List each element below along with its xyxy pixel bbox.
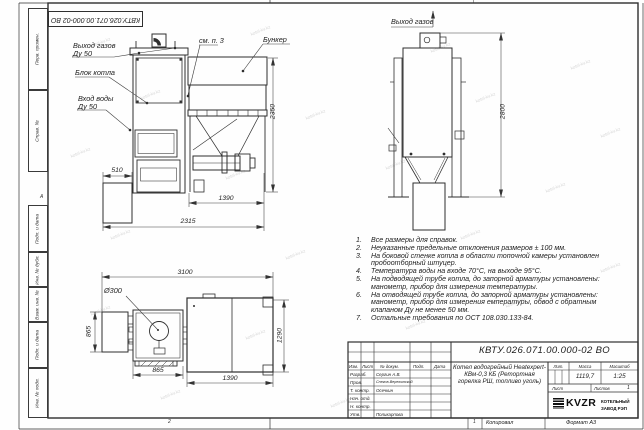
dim-1390-front: 1390 xyxy=(206,195,246,202)
dim-1290: 1290 xyxy=(277,321,284,351)
dim-2800: 2800 xyxy=(500,97,507,127)
tb-mass-value: 1119,7 xyxy=(569,373,601,380)
side-view xyxy=(388,11,505,230)
tb-header-doc: № докум. xyxy=(380,364,399,369)
tb-role-prov: Пров. xyxy=(350,380,362,385)
label-boiler-block: Блок котла xyxy=(75,69,115,77)
title-block-doc-number: КВТУ.026.071.00.000-02 ВО xyxy=(451,345,638,356)
dim-1390-plan: 1390 xyxy=(210,375,250,382)
tb-name-razrab: Сергин А.В. xyxy=(376,372,401,377)
dim-3100: 3100 xyxy=(165,269,205,276)
label-water-inlet-dn: Ду 50 xyxy=(78,103,97,111)
dim-865-left: 865 xyxy=(86,317,93,347)
note-number: 6. xyxy=(356,292,371,315)
top-doc-number: КВТУ.026.071.00.000-02 ВО xyxy=(51,16,140,23)
stamp-podp-data-2: Подп. и дата xyxy=(28,322,48,368)
tb-name-prov: Снегов-Вережинский xyxy=(376,380,413,384)
label-see-note-3: см. п. 3 xyxy=(199,37,224,45)
label-gas-outlet-dn: Ду 50 xyxy=(73,50,92,58)
note-text: Остальные требования по ОСТ 108.030.133-… xyxy=(371,315,608,323)
label-hopper: Бункер xyxy=(263,36,287,44)
tb-role-nkontr: Н. контр. xyxy=(350,404,371,409)
footer-kopiroval: Копировал xyxy=(486,420,513,426)
tb-sheet-label: Лист xyxy=(552,386,563,391)
tb-lit-label: Лит. xyxy=(548,364,569,369)
footer-format: Формат А3 xyxy=(566,420,596,426)
stamp-podp-data-1: Подп. и дата xyxy=(28,205,48,252)
tb-role-utv: Утв. xyxy=(350,412,360,417)
stamp-label: Взам. инв. № xyxy=(36,290,41,320)
zone-mark-bottom-2: 2 xyxy=(168,419,171,425)
label-gas-outlet-side: Выход газов xyxy=(391,18,434,26)
stamp-sprav-no: Справ. № xyxy=(28,90,48,172)
note-text: На отводящей трубе котла, до запорной ар… xyxy=(371,292,608,315)
tb-sheets-label: Листов xyxy=(594,386,610,391)
tb-name-tkontr: Осечкин xyxy=(376,388,393,393)
stamp-label: Инв. № подл. xyxy=(36,378,41,408)
stamp-inv-dubl: Инв. № дубл. xyxy=(28,252,48,287)
kvzr-logo-line2: ЗАВОД РЭП xyxy=(601,406,627,411)
kvzr-logo-mark xyxy=(553,398,564,409)
title-block-product-name: Котел водогрейный Heatexpert-КВм-0,3 КБ … xyxy=(453,364,546,386)
tb-header-podp: Подп. xyxy=(413,364,424,369)
stamp-label: Подп. и дата xyxy=(36,213,41,243)
note-item: 3.На боковой стенке котла в области топо… xyxy=(356,253,608,269)
kvzr-logo-line1: КОТЕЛЬНЫЙ xyxy=(601,399,630,404)
zone-mark-bottom-1: 1 xyxy=(473,419,476,425)
stamp-label: Справ. № xyxy=(36,120,41,142)
tb-mass-label: Масса xyxy=(569,364,601,369)
tb-header-izm: Изм. xyxy=(349,364,358,369)
top-doc-number-stamp: КВТУ.026.071.00.000-02 ВО xyxy=(48,11,143,27)
drawing-sheet: kotel-kv.kz kotel-kv.kz kotel-kv.kz kote… xyxy=(0,0,644,430)
note-number: 7. xyxy=(356,315,371,323)
tb-header-list: Лист xyxy=(362,364,373,369)
tb-sheets-value: 1 xyxy=(627,385,630,391)
zone-mark-left-a: А xyxy=(40,194,43,200)
stamp-label: Подп. и дата xyxy=(36,330,41,360)
stamp-inv-podl: Инв. № подл. xyxy=(28,368,48,418)
note-text: На подводящей трубе котла, до запорной а… xyxy=(371,276,608,292)
note-item: 6.На отводящей трубе котла, до запорной … xyxy=(356,292,608,315)
tb-role-tkontr: Т. контр. xyxy=(350,388,370,393)
note-item: 5.На подводящей трубе котла, до запорной… xyxy=(356,276,608,292)
dim-2315: 2315 xyxy=(168,218,208,225)
note-item: 7.Остальные требования по ОСТ 108.030.13… xyxy=(356,315,608,323)
tb-scale-value: 1:25 xyxy=(601,373,638,380)
stamp-vzam-inv: Взам. инв. № xyxy=(28,287,48,322)
tb-scale-label: Масштаб xyxy=(601,364,638,369)
stamp-label: Инв. № дубл. xyxy=(36,255,41,285)
dim-2350: 2350 xyxy=(270,97,277,127)
technical-notes: 1.Все размеры для справок. 2.Неуказанные… xyxy=(356,237,608,323)
tb-role-razrab: Разраб. xyxy=(350,372,367,377)
note-text: На боковой стенке котла в области топочн… xyxy=(371,253,608,269)
tb-role-nachotd: Нач. отд. xyxy=(350,396,371,401)
front-view-hopper xyxy=(188,57,267,192)
kvzr-logo-text: KVZR xyxy=(566,397,596,409)
note-number: 3. xyxy=(356,253,371,269)
label-diameter-300: Ø300 xyxy=(104,287,122,295)
dim-865-bottom: 865 xyxy=(138,367,178,374)
tb-header-data: Дата xyxy=(434,364,445,369)
stamp-perv-primen: Перв. примен. xyxy=(28,8,48,90)
zone-mark-top-1: 1 xyxy=(472,0,475,5)
stamp-label: Перв. примен. xyxy=(36,33,41,65)
tb-name-utv: Поликарпова xyxy=(376,412,403,417)
note-number: 5. xyxy=(356,276,371,292)
front-view-boiler xyxy=(103,34,188,223)
dim-510: 510 xyxy=(97,167,137,174)
